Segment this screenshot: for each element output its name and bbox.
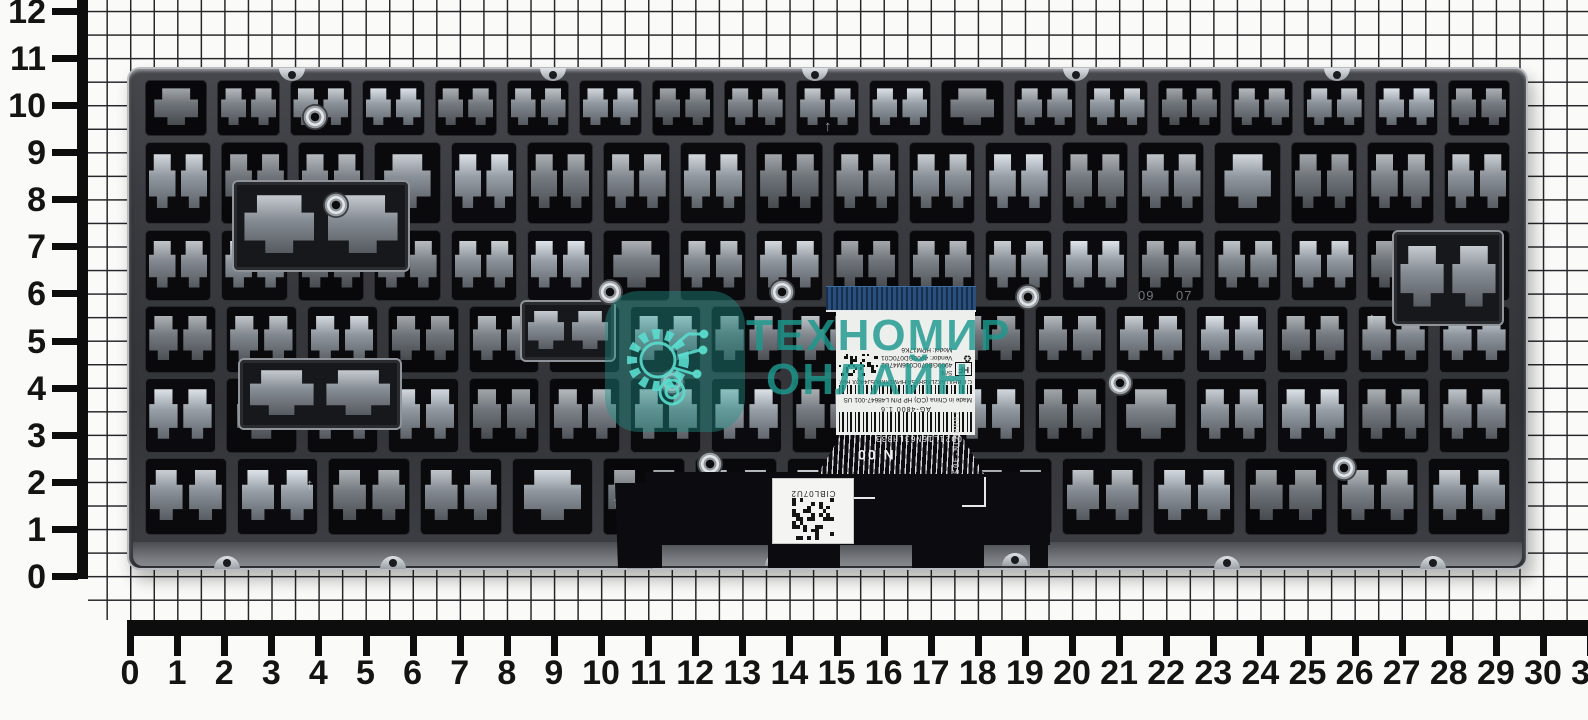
key-clip (639, 154, 666, 208)
horizontal-ruler-tick (127, 636, 134, 656)
key-clip (1098, 154, 1125, 208)
key-clip (426, 389, 454, 439)
key-module (328, 458, 410, 535)
key-clip (1295, 241, 1322, 288)
key-module (1444, 142, 1510, 224)
horizontal-ruler-number: 20 (1048, 656, 1096, 690)
key-module (1291, 230, 1357, 301)
horizontal-ruler-number: 6 (389, 656, 437, 690)
qr-code-icon (792, 498, 834, 540)
key-clip (572, 311, 609, 349)
key-clip (1198, 470, 1231, 521)
key-clip (1039, 316, 1067, 360)
key-module (435, 80, 497, 136)
key-clip (684, 154, 711, 208)
key-clip (1282, 389, 1310, 439)
screw-boss (1331, 455, 1357, 481)
key-clip (913, 241, 940, 288)
key-clip (1396, 389, 1424, 439)
key-clip (1481, 88, 1506, 125)
key-clip (507, 389, 535, 439)
key-module (1035, 378, 1106, 453)
key-clip (1295, 154, 1322, 208)
key-clip (563, 241, 590, 288)
key-module (1439, 378, 1510, 453)
vertical-ruler-number: 1 (0, 513, 46, 547)
key-clip (1400, 246, 1443, 307)
key-clip (872, 88, 897, 125)
key-clip (716, 154, 743, 208)
key-module (579, 80, 641, 136)
watermark-line2: ОНЛАЙН (766, 358, 970, 402)
key-module (145, 378, 216, 453)
key-module (756, 142, 822, 224)
horizontal-ruler-number: 0 (106, 656, 154, 690)
qr-sticker: CIBL07U2 (772, 478, 854, 544)
key-clip (149, 154, 176, 208)
key-module (1196, 306, 1267, 373)
key-clip (464, 470, 497, 521)
key-clip (333, 470, 366, 521)
key-clip (836, 241, 863, 288)
arrow-mark: ↑ (1368, 310, 1376, 327)
horizontal-ruler-number: 29 (1472, 656, 1520, 690)
key-clip (902, 88, 927, 125)
horizontal-ruler-number: 13 (718, 656, 766, 690)
key-module (941, 80, 1003, 136)
key-module (451, 230, 517, 301)
key-clip (154, 88, 198, 125)
key-clip (438, 88, 463, 125)
horizontal-ruler-tick (457, 636, 464, 656)
tab-hole (1072, 71, 1080, 79)
key-module (1291, 142, 1357, 224)
horizontal-ruler-tick (551, 636, 558, 656)
horizontal-ruler-number: 4 (294, 656, 342, 690)
key-module (145, 306, 216, 373)
key-clip (183, 316, 211, 360)
key-clip (1381, 470, 1414, 521)
horizontal-ruler-number: 8 (483, 656, 531, 690)
key-clip (1327, 241, 1354, 288)
screw-boss (1015, 284, 1041, 310)
key-clip (1235, 316, 1263, 360)
key-clip (563, 154, 590, 208)
tab-hole (288, 71, 296, 79)
key-clip (1067, 470, 1100, 521)
key-clip (1316, 316, 1344, 360)
key-clip (181, 241, 208, 288)
key-clip (1477, 389, 1505, 439)
key-clip (684, 241, 711, 288)
vertical-ruler-number: 5 (0, 325, 46, 359)
photo-stage: 0123456789101112012345678910111213141516… (0, 0, 1588, 720)
screw-boss (323, 192, 349, 218)
horizontal-ruler-number: 5 (342, 656, 390, 690)
key-clip (716, 241, 743, 288)
key-clip (1307, 88, 1332, 125)
key-clip (1201, 316, 1229, 360)
key-clip (189, 470, 222, 521)
horizontal-ruler-tick (363, 636, 370, 656)
horizontal-ruler-tick (1257, 636, 1264, 656)
key-clip (1282, 316, 1310, 360)
horizontal-ruler-number: 23 (1189, 656, 1237, 690)
key-clip (1142, 241, 1169, 288)
key-clip (372, 470, 405, 521)
key-clip (1120, 88, 1145, 125)
key-clip (366, 88, 391, 125)
key-clip (1448, 154, 1475, 208)
tab-hole (1429, 559, 1437, 567)
horizontal-ruler-tick (881, 636, 888, 656)
key-clip (264, 316, 292, 360)
key-module (1277, 378, 1348, 453)
vertical-ruler-tick (52, 432, 78, 439)
key-clip (511, 88, 536, 125)
horizontal-ruler-tick (1069, 636, 1076, 656)
vertical-ruler-tick (52, 8, 78, 15)
horizontal-ruler-tick (268, 636, 275, 656)
vertical-ruler-tick (52, 573, 78, 580)
key-clip (1073, 389, 1101, 439)
key-module (145, 80, 207, 136)
key-module (237, 458, 319, 535)
vertical-ruler-number: 3 (0, 419, 46, 453)
key-module (512, 458, 594, 535)
key-clip (1120, 316, 1148, 360)
tab-hole (811, 71, 819, 79)
key-clip (149, 316, 177, 360)
key-clip (455, 154, 482, 208)
key-clip (1142, 154, 1169, 208)
gear-circuit-icon (612, 316, 722, 426)
key-clip (989, 241, 1016, 288)
key-clip (486, 241, 513, 288)
horizontal-ruler-number: 27 (1378, 656, 1426, 690)
horizontal-ruler-tick (786, 636, 793, 656)
horizontal-ruler-tick (1116, 636, 1123, 656)
key-clip (468, 88, 493, 125)
horizontal-ruler-tick (1210, 636, 1217, 656)
key-clip (945, 154, 972, 208)
horizontal-ruler-tick (1352, 636, 1359, 656)
key-module (527, 230, 593, 301)
key-clip (836, 154, 863, 208)
key-clip (242, 470, 275, 521)
key-module (1014, 80, 1076, 136)
vertical-ruler-number: 9 (0, 136, 46, 170)
key-clip (473, 316, 501, 360)
key-clip (1224, 154, 1270, 208)
key-clip (1039, 389, 1067, 439)
horizontal-ruler-tick (1399, 636, 1406, 656)
key-module (1062, 458, 1144, 535)
horizontal-ruler-tick (315, 636, 322, 656)
blue-ribbon-cable (826, 286, 976, 312)
key-clip (396, 88, 421, 125)
screw-boss (1107, 370, 1133, 396)
horizontal-ruler-number: 24 (1236, 656, 1284, 690)
key-clip (149, 241, 176, 288)
key-clip (181, 154, 208, 208)
key-clip (758, 88, 783, 125)
key-clip (1090, 88, 1115, 125)
key-module (527, 142, 593, 224)
key-module (469, 378, 540, 453)
key-clip (531, 154, 558, 208)
key-clip (486, 154, 513, 208)
horizontal-ruler-number: 16 (860, 656, 908, 690)
key-clip (1192, 88, 1217, 125)
horizontal-ruler-tick (1493, 636, 1500, 656)
flex-trace-code: OD21L16N63LH333 (832, 434, 962, 443)
tab-hole (1011, 556, 1019, 564)
key-clip (830, 88, 855, 125)
key-clip (868, 241, 895, 288)
key-clip (950, 88, 994, 125)
key-clip (1235, 389, 1263, 439)
vertical-ruler-tick (52, 290, 78, 297)
key-module (1062, 230, 1128, 301)
key-clip (455, 241, 482, 288)
key-clip (1316, 389, 1344, 439)
horizontal-ruler-number: 30 (1519, 656, 1567, 690)
key-clip (1066, 241, 1093, 288)
key-clip (1362, 389, 1390, 439)
key-clip (1443, 389, 1471, 439)
vertical-ruler-number: 6 (0, 277, 46, 311)
key-clip (868, 154, 895, 208)
key-module (1448, 80, 1510, 136)
tab-hole (1223, 559, 1231, 567)
horizontal-ruler-number: 15 (813, 656, 861, 690)
key-module (420, 458, 502, 535)
horizontal-ruler-number: 19 (1001, 656, 1049, 690)
horizontal-ruler-tick (221, 636, 228, 656)
key-clip (221, 88, 246, 125)
key-clip (800, 88, 825, 125)
key-clip (1201, 389, 1229, 439)
key-clip (251, 88, 276, 125)
key-clip (992, 389, 1020, 439)
key-module (1062, 142, 1128, 224)
horizontal-ruler-tick (739, 636, 746, 656)
key-module (1153, 458, 1235, 535)
key-clip (1433, 470, 1466, 521)
vertical-ruler-tick (52, 196, 78, 203)
horizontal-ruler-tick (928, 636, 935, 656)
vertical-ruler-number: 11 (0, 42, 46, 76)
watermark-line1: ТЕХНОМИР (746, 314, 1011, 358)
screw-boss (302, 104, 328, 130)
vertical-ruler-tick (52, 149, 78, 156)
horizontal-ruler-number: 17 (907, 656, 955, 690)
key-clip (1126, 389, 1176, 439)
key-clip (392, 316, 420, 360)
key-clip (613, 241, 659, 288)
arrow-mark: ↑ (824, 118, 832, 135)
key-clip (1158, 470, 1191, 521)
key-module (217, 80, 279, 136)
key-module (145, 230, 211, 301)
horizontal-ruler-tick (598, 636, 605, 656)
key-clip (473, 389, 501, 439)
horizontal-ruler-number: 28 (1425, 656, 1473, 690)
key-clip (183, 389, 211, 439)
key-module (1358, 378, 1429, 453)
key-clip (760, 154, 787, 208)
key-clip (524, 470, 581, 521)
key-module (869, 80, 931, 136)
key-clip (792, 154, 819, 208)
key-module (1428, 458, 1510, 535)
key-module (145, 142, 211, 224)
vertical-ruler-tick (52, 385, 78, 392)
key-module (909, 142, 975, 224)
key-clip (1264, 88, 1289, 125)
horizontal-ruler-number: 1 (153, 656, 201, 690)
key-module (724, 80, 786, 136)
vertical-ruler-bar (77, 0, 88, 579)
key-module (1196, 378, 1267, 453)
large-key-module (520, 300, 616, 362)
horizontal-ruler-number: 25 (1284, 656, 1332, 690)
key-module (1367, 142, 1433, 224)
key-clip (1337, 88, 1362, 125)
vertical-ruler-number: 4 (0, 372, 46, 406)
vertical-ruler-tick (52, 102, 78, 109)
key-module (985, 142, 1051, 224)
key-clip (728, 88, 753, 125)
key-clip (541, 88, 566, 125)
key-module (680, 142, 746, 224)
plate-stamp-left: 09 (1138, 288, 1154, 303)
key-clip (655, 88, 680, 125)
key-clip (1250, 241, 1277, 288)
key-clip (311, 316, 339, 360)
horizontal-ruler-number: 7 (436, 656, 484, 690)
horizontal-ruler-tick (174, 636, 181, 656)
horizontal-ruler-tick (834, 636, 841, 656)
key-clip (1289, 470, 1322, 521)
key-clip (792, 241, 819, 288)
large-key-module (1392, 230, 1504, 326)
key-module (1214, 230, 1280, 301)
key-module (1245, 458, 1327, 535)
large-key-module (232, 180, 410, 272)
tab-hole (549, 71, 557, 79)
key-module (145, 458, 227, 535)
key-clip (1327, 154, 1354, 208)
key-module (1277, 306, 1348, 373)
key-clip (989, 154, 1016, 208)
horizontal-ruler-number: 14 (765, 656, 813, 690)
key-clip (607, 154, 634, 208)
key-clip (1403, 154, 1430, 208)
key-clip (426, 316, 454, 360)
key-clip (1021, 241, 1048, 288)
key-module (652, 80, 714, 136)
key-module (507, 80, 569, 136)
key-clip (945, 241, 972, 288)
key-clip (425, 470, 458, 521)
key-clip (685, 88, 710, 125)
corner-mark (962, 505, 986, 507)
key-clip (1021, 154, 1048, 208)
key-module (1035, 306, 1106, 373)
flex-stamp-code: N 00 (856, 447, 894, 463)
key-clip (326, 370, 390, 415)
horizontal-ruler-number: 11 (624, 656, 672, 690)
key-clip (230, 316, 258, 360)
key-clip (1379, 88, 1404, 125)
key-clip (1017, 88, 1042, 125)
key-clip (1234, 88, 1259, 125)
horizontal-ruler-tick (1540, 636, 1547, 656)
horizontal-ruler-tick (1305, 636, 1312, 656)
key-clip (528, 311, 565, 349)
horizontal-ruler-number: 18 (954, 656, 1002, 690)
vertical-ruler-tick (52, 479, 78, 486)
key-clip (554, 389, 582, 439)
key-clip (150, 470, 183, 521)
vertical-ruler-number: 10 (0, 89, 46, 123)
horizontal-ruler-tick (692, 636, 699, 656)
key-clip (1073, 316, 1101, 360)
vertical-ruler-tick (52, 526, 78, 533)
horizontal-ruler-number: 3 (247, 656, 295, 690)
key-clip (345, 316, 373, 360)
screw-boss (769, 279, 795, 305)
key-clip (531, 241, 558, 288)
horizontal-ruler-tick (504, 636, 511, 656)
key-clip (250, 370, 314, 415)
vertical-ruler-tick (52, 338, 78, 345)
key-clip (1451, 88, 1476, 125)
key-clip (913, 154, 940, 208)
horizontal-ruler-tick (410, 636, 417, 656)
horizontal-ruler-number: 31 (1566, 656, 1588, 690)
horizontal-ruler-number: 10 (577, 656, 625, 690)
tab-hole (1333, 71, 1341, 79)
key-clip (1452, 246, 1495, 307)
horizontal-ruler-tick (1022, 636, 1029, 656)
horizontal-ruler-number: 22 (1142, 656, 1190, 690)
arrow-mark: ↑ (306, 476, 314, 493)
key-clip (1066, 154, 1093, 208)
key-module (1086, 80, 1148, 136)
horizontal-ruler-tick (645, 636, 652, 656)
tab-hole (389, 559, 397, 567)
horizontal-ruler-tick (975, 636, 982, 656)
key-clip (244, 195, 314, 253)
key-clip (1362, 316, 1390, 360)
plate-stamp-right: 07 (1176, 288, 1192, 303)
key-clip (1174, 154, 1201, 208)
key-clip (410, 241, 437, 288)
vertical-ruler-number: 8 (0, 183, 46, 217)
vertical-ruler-tick (52, 55, 78, 62)
key-clip (1154, 316, 1182, 360)
key-clip (1098, 241, 1125, 288)
large-key-module (238, 358, 402, 430)
corner-mark (984, 477, 986, 507)
key-module (1158, 80, 1220, 136)
horizontal-ruler-tick (1163, 636, 1170, 656)
key-clip (1174, 241, 1201, 288)
horizontal-ruler-number: 21 (1095, 656, 1143, 690)
